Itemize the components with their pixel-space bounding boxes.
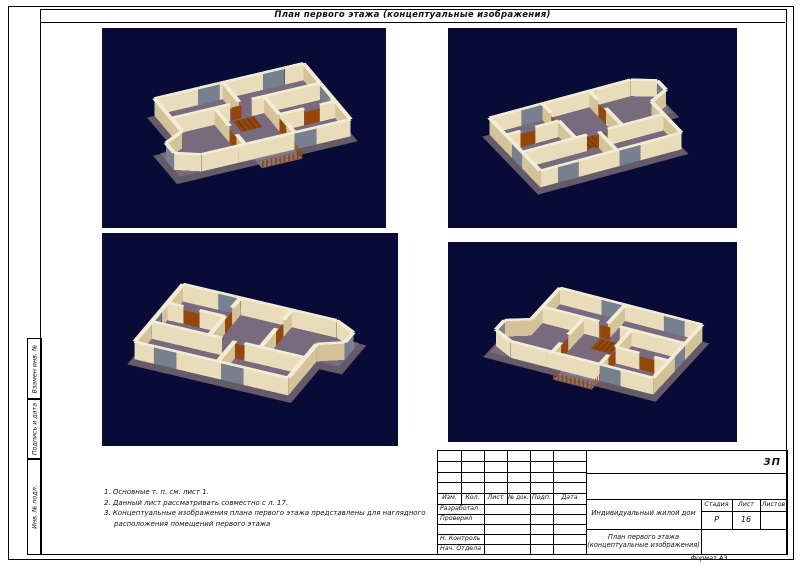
- wall-face: [174, 153, 201, 172]
- signature-row-label: Проверил: [440, 514, 484, 524]
- stage-value: Р: [701, 511, 732, 529]
- project-name: Индивидуальный жилой дом: [586, 499, 701, 529]
- note-item: 3. Концептуальные изображения плана перв…: [104, 508, 439, 529]
- floor-plan-render-top-right: [448, 28, 737, 228]
- note-item: 2. Данный лист рассматривать совместно с…: [104, 498, 439, 509]
- format-label: Формат А3: [659, 554, 759, 562]
- sheets-total: [760, 511, 787, 529]
- drawing-name-line2: (концептуальные изображения): [587, 542, 700, 549]
- signature-row-label: Н. Контроль: [440, 534, 484, 544]
- signature-row-label: Разработал: [440, 504, 484, 514]
- revision-header: Кол.: [461, 493, 484, 504]
- sheet-number: 16: [732, 511, 760, 529]
- document-code: ЗП: [586, 451, 787, 473]
- signature-row-label: Нач. Отдела: [440, 544, 484, 554]
- margin-cell-signature-date: Подпись и дата: [27, 398, 42, 460]
- floor-plan-render-bottom-left: [102, 233, 398, 446]
- page-title: План первого этажа (концептуальные изобр…: [40, 9, 785, 22]
- margin-label: Подпись и дата: [31, 403, 38, 455]
- stage-header: Стадия: [701, 499, 732, 511]
- sheets-header: Листов: [760, 499, 787, 511]
- drawing-name: План первого этажа (концептуальные изобр…: [586, 529, 701, 554]
- sheet-notes: 1. Основные т. п. см. лист 1. 2. Данный …: [104, 487, 439, 529]
- signature-row-label: [440, 524, 484, 534]
- grid-line: [586, 473, 787, 474]
- margin-label: Инв. № подл.: [31, 485, 38, 528]
- title-block: Изм. Кол. Лист № док. Подп. Дата Разрабо…: [437, 450, 788, 555]
- note-item: 1. Основные т. п. см. лист 1.: [104, 487, 439, 498]
- sheet-title-bar: План первого этажа (концептуальные изобр…: [40, 9, 785, 23]
- margin-label: Взамен инв. №: [31, 345, 38, 394]
- floor-plan-render-bottom-right: [448, 242, 737, 442]
- revision-header: Лист: [484, 493, 507, 504]
- revision-header: Подп.: [530, 493, 553, 504]
- revision-header: Изм.: [438, 493, 461, 504]
- drawing-sheet: План первого этажа (концептуальные изобр…: [0, 0, 800, 565]
- grid-line: [438, 482, 586, 483]
- grid-line: [438, 461, 586, 462]
- revision-header: Дата: [553, 493, 586, 504]
- wall-face: [630, 80, 657, 97]
- margin-cell-replacement-inv: Взамен инв. №: [27, 338, 42, 400]
- grid-line: [438, 472, 586, 473]
- revision-header: № док.: [507, 493, 530, 504]
- wall-face: [504, 319, 531, 337]
- margin-cell-inv-original: Инв. № подл.: [27, 458, 42, 555]
- wall-face: [317, 342, 345, 361]
- floor-plan-render-top-left: [102, 28, 386, 228]
- sheet-header: Лист: [732, 499, 760, 511]
